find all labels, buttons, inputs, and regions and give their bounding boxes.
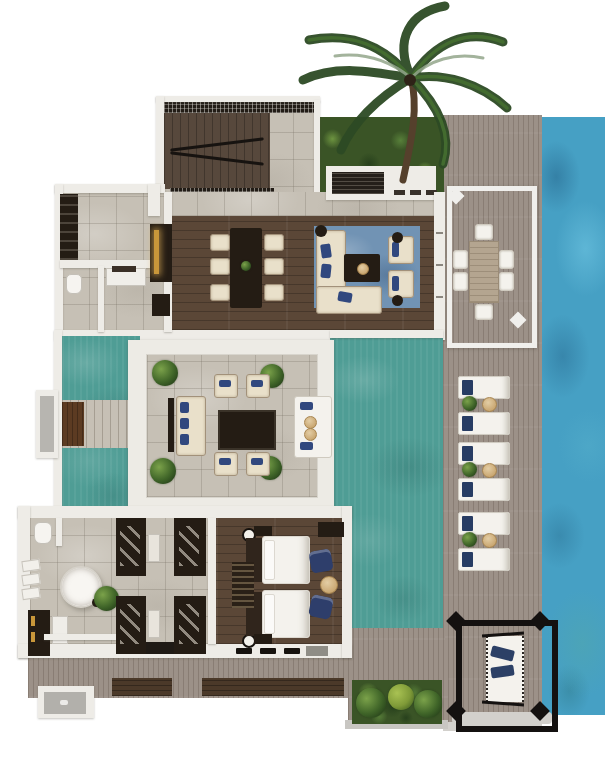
armchair-pillow	[392, 242, 399, 257]
coffee-table-tray	[357, 263, 369, 275]
side-table	[392, 232, 403, 243]
dining-chair	[210, 258, 230, 275]
shower-partition	[44, 634, 116, 640]
wardrobe	[116, 518, 146, 576]
wardrobe-clothes	[179, 526, 199, 566]
bed-bench	[254, 634, 272, 644]
lounger-headrest	[462, 482, 473, 497]
beds-console	[232, 562, 254, 608]
wall-wc-partition	[98, 266, 104, 332]
dining-chair	[264, 234, 284, 251]
wall-bath-stub	[56, 518, 62, 546]
wall-stub	[148, 184, 160, 216]
entry-mat	[62, 402, 84, 446]
door-mat	[306, 646, 328, 656]
bedroom-ottoman	[320, 576, 338, 594]
dining-chair	[210, 234, 230, 251]
sun-lounger	[458, 548, 510, 571]
pavilion-sofa-pillow	[180, 434, 189, 445]
palm-trunk	[403, 78, 414, 180]
outdoor-dining-chair	[499, 272, 514, 291]
bed-pillow	[264, 594, 275, 634]
pavilion-armchair-pillow	[219, 380, 231, 387]
bed-pillow	[264, 540, 275, 580]
daybed-pillow	[300, 442, 313, 450]
pavilion-armchair-pillow	[219, 458, 231, 465]
wardrobe-clothes	[120, 526, 140, 566]
step-vent	[260, 648, 276, 654]
deck-side-table	[482, 397, 497, 412]
table-centerpiece	[241, 261, 251, 271]
deck-plant	[462, 532, 477, 547]
wardrobe-clothes	[120, 604, 140, 644]
bedroom-armchair	[308, 594, 334, 620]
daybed-sunhat	[304, 428, 317, 441]
bedroom-armchair	[308, 548, 333, 573]
step-vent	[284, 648, 300, 654]
wardrobe	[174, 518, 206, 576]
outdoor-dining-chair	[453, 250, 468, 269]
sun-lounger	[458, 412, 510, 435]
dressing-bench	[148, 610, 160, 638]
stair-railing	[170, 151, 264, 165]
pavilion-center-table	[218, 410, 276, 450]
dressing-bench	[148, 534, 160, 562]
pool-wall-top	[330, 330, 443, 338]
powder-vanity-top	[112, 266, 136, 272]
outdoor-dining-chair	[499, 250, 514, 269]
glass-door-mullion	[436, 296, 443, 298]
pavilion-plant	[150, 458, 176, 484]
lounger-headrest	[462, 416, 473, 431]
toilet	[34, 522, 52, 544]
pantry-cabinet	[60, 194, 78, 260]
lounger-headrest	[462, 552, 473, 567]
rear-bush	[414, 690, 442, 718]
wardrobe	[174, 596, 206, 654]
pavilion-sofa-pillow	[180, 418, 189, 429]
bed-bench	[254, 526, 272, 536]
deck-side-table	[482, 463, 497, 478]
deck-walkway-panel	[112, 678, 172, 696]
sofa-pillow	[320, 264, 331, 279]
bedroom-cabinet	[318, 522, 344, 537]
bath-vanity-light	[31, 616, 35, 626]
dining-chair	[264, 258, 284, 275]
daybed-pillow	[300, 402, 313, 410]
wardrobe	[116, 596, 146, 654]
outdoor-dining-chair	[475, 224, 493, 240]
stair-railing	[170, 137, 264, 151]
entry-landing-step	[40, 396, 54, 452]
glass-door-mullion	[436, 264, 443, 266]
villa-floor-plan	[0, 0, 605, 768]
glass-door-mullion	[436, 232, 443, 234]
deck-plant	[462, 396, 477, 411]
lounger-headrest	[462, 380, 473, 395]
pavilion-plant	[152, 360, 178, 386]
pavilion-armchair-pillow	[251, 380, 263, 387]
deck-walkway-panel	[202, 678, 344, 696]
palm-coconuts	[404, 74, 416, 86]
pavilion-sofa-pillow	[180, 402, 189, 413]
tv-console-light	[154, 230, 159, 274]
dining-chair	[264, 284, 284, 301]
wall-bath-bed-divider	[208, 518, 216, 644]
armchair-pillow	[392, 276, 399, 291]
step-vent	[236, 648, 252, 654]
pavilion-sofa-console	[168, 398, 174, 452]
staircase	[164, 111, 270, 189]
pavilion-armchair-pillow	[251, 458, 263, 465]
wardrobe-clothes	[179, 604, 199, 644]
side-table	[315, 225, 327, 237]
shower-mat	[146, 642, 174, 654]
dining-chair	[210, 284, 230, 301]
side-table	[392, 295, 403, 306]
rear-bush	[388, 684, 414, 710]
outdoor-dining-chair	[453, 272, 468, 291]
rear-step-light	[60, 700, 68, 705]
outdoor-dining-table	[469, 241, 499, 303]
palm-tree-icon	[295, 0, 515, 195]
rear-bush	[356, 688, 386, 718]
deck-side-table	[482, 533, 497, 548]
sun-lounger	[458, 478, 510, 501]
bath-vanity-light	[31, 632, 35, 642]
deck-plant	[462, 462, 477, 477]
sofa-pillow	[320, 243, 332, 258]
wall-lower-top	[18, 506, 352, 518]
cabinet-low	[152, 294, 170, 316]
outdoor-dining-chair	[475, 304, 493, 320]
lounger-headrest	[462, 446, 473, 461]
toilet	[66, 274, 82, 294]
lounger-headrest	[462, 516, 473, 531]
